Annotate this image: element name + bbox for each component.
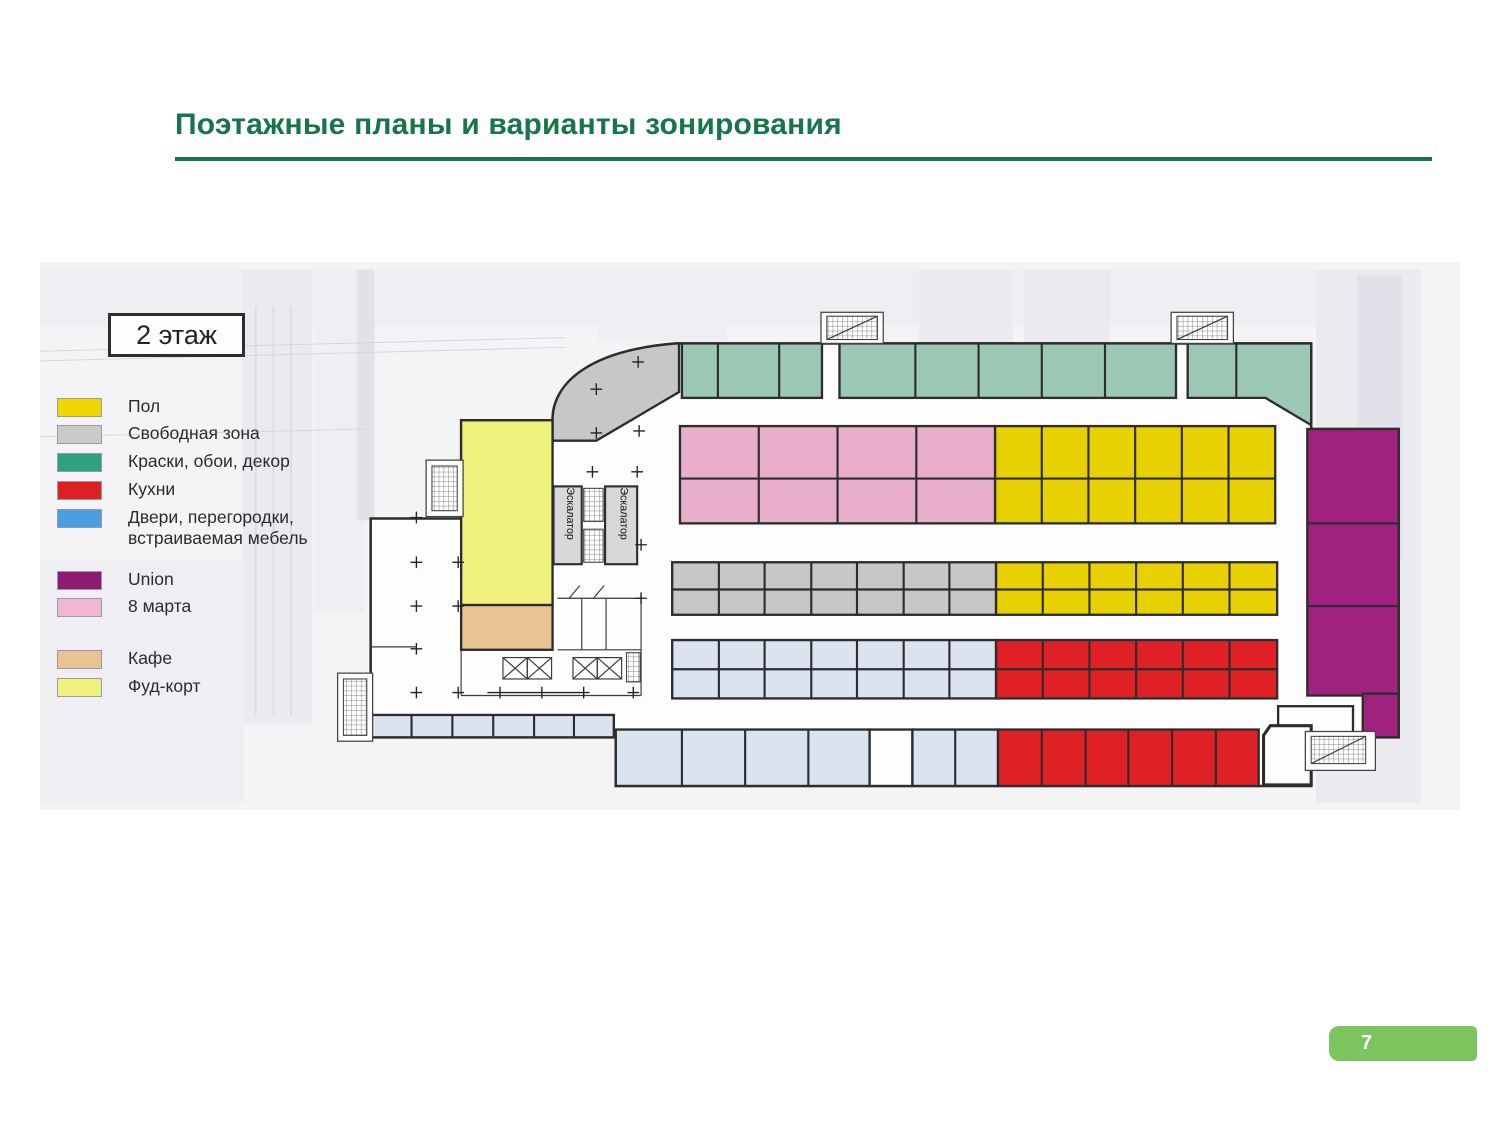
- escalator-label: Эскалатор: [564, 487, 576, 540]
- page-number: 7: [1361, 1032, 1372, 1054]
- legend-swatch: [57, 571, 102, 590]
- zone-kitchens-upper: [996, 640, 1277, 698]
- slide: Поэтажные планы и варианты зонирования: [0, 0, 1500, 1125]
- legend-swatch: [57, 598, 102, 617]
- legend-label: Свободная зона: [128, 423, 260, 444]
- zone-cafe: [461, 605, 552, 650]
- legend-label: Кухни: [128, 479, 175, 500]
- floor-plan-scan: Эскалатор Эскалатор: [40, 262, 1460, 810]
- zone-free-cells: [672, 562, 996, 615]
- floor-label-text: 2 этаж: [136, 320, 217, 351]
- legend-label: Фуд-корт: [128, 676, 200, 697]
- zone-foodcourt: [461, 420, 552, 605]
- legend-item: Кафе: [57, 650, 172, 669]
- legend-label: Двери, перегородки, встраиваемая мебель: [128, 507, 360, 549]
- legend-item: Фуд-корт: [57, 678, 200, 697]
- legend-item: Свободная зона: [57, 425, 260, 444]
- legend-swatch: [57, 425, 102, 444]
- legend-label: Пол: [128, 396, 160, 417]
- legend-swatch: [57, 678, 102, 697]
- legend-label: Краски, обои, декор: [128, 451, 290, 472]
- zone-doors-cells: [672, 640, 996, 698]
- legend-label: 8 марта: [128, 596, 191, 617]
- floor-label: 2 этаж: [108, 313, 245, 357]
- escalator-label: Эскалатор: [618, 487, 630, 540]
- legend-swatch: [57, 650, 102, 669]
- legend-swatch: [57, 481, 102, 500]
- legend-item: 8 марта: [57, 598, 191, 617]
- legend-swatch: [57, 453, 102, 472]
- legend-item: Кухни: [57, 481, 175, 500]
- legend-item: Двери, перегородки, встраиваемая мебель: [57, 509, 360, 549]
- page-title: Поэтажные планы и варианты зонирования: [175, 108, 842, 142]
- legend-label: Кафе: [128, 648, 172, 669]
- zone-union: [1307, 429, 1398, 737]
- legend-item: Краски, обои, декор: [57, 453, 290, 472]
- legend-item: Пол: [57, 398, 160, 417]
- legend-item: Union: [57, 571, 174, 590]
- zone-floors-upper: [995, 426, 1275, 523]
- room-pentagon: [1264, 726, 1312, 785]
- legend-swatch: [57, 398, 102, 417]
- legend-swatch: [57, 509, 102, 528]
- page-number-badge: 7: [1329, 1026, 1477, 1061]
- zone-8-marta: [680, 426, 995, 523]
- zone-floors-lower: [996, 562, 1277, 615]
- legend-label: Union: [128, 569, 174, 590]
- title-underline: [175, 157, 1432, 161]
